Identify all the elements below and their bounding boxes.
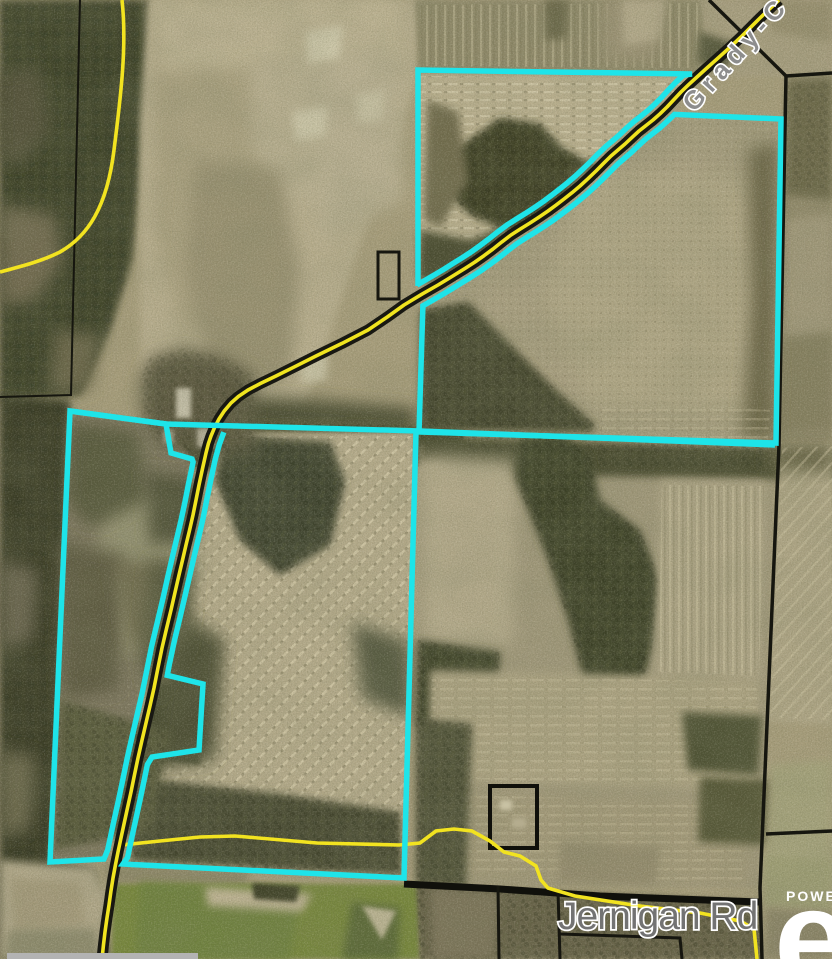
svg-text:e: e — [774, 861, 832, 959]
svg-text:Jernigan Rd: Jernigan Rd — [558, 895, 757, 938]
